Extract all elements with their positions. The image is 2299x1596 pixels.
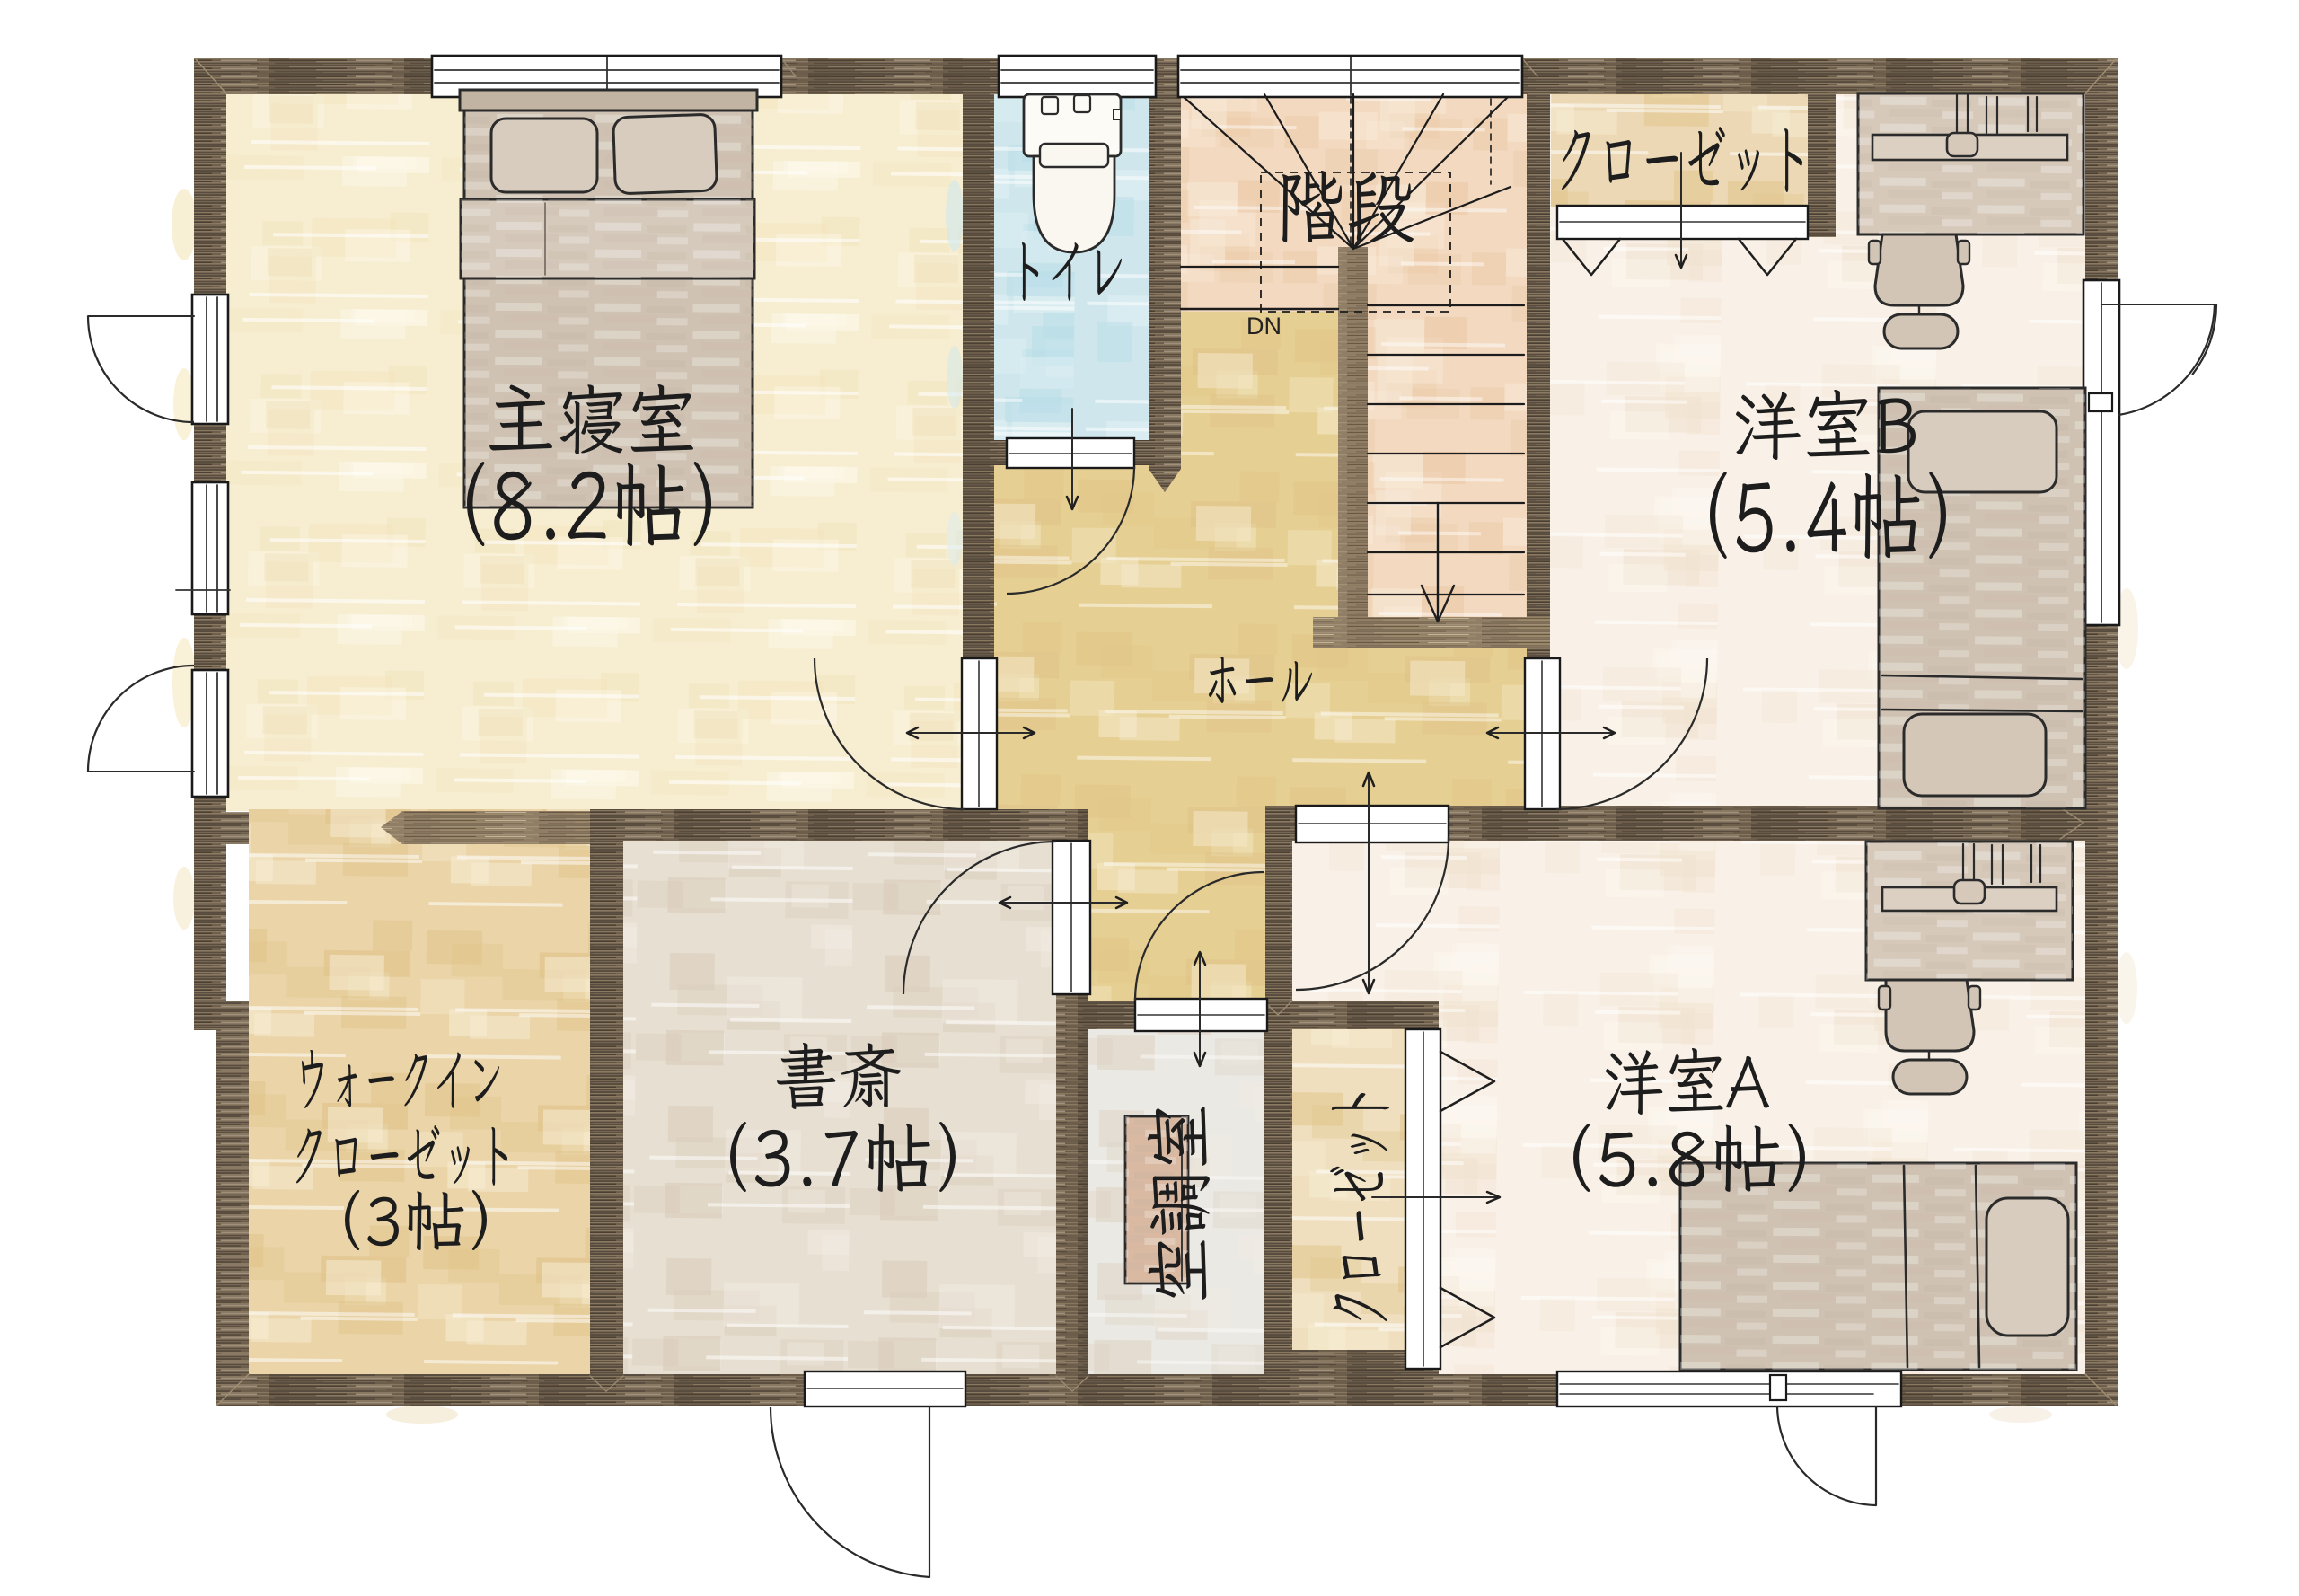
svg-text:DN: DN [1246,313,1282,339]
